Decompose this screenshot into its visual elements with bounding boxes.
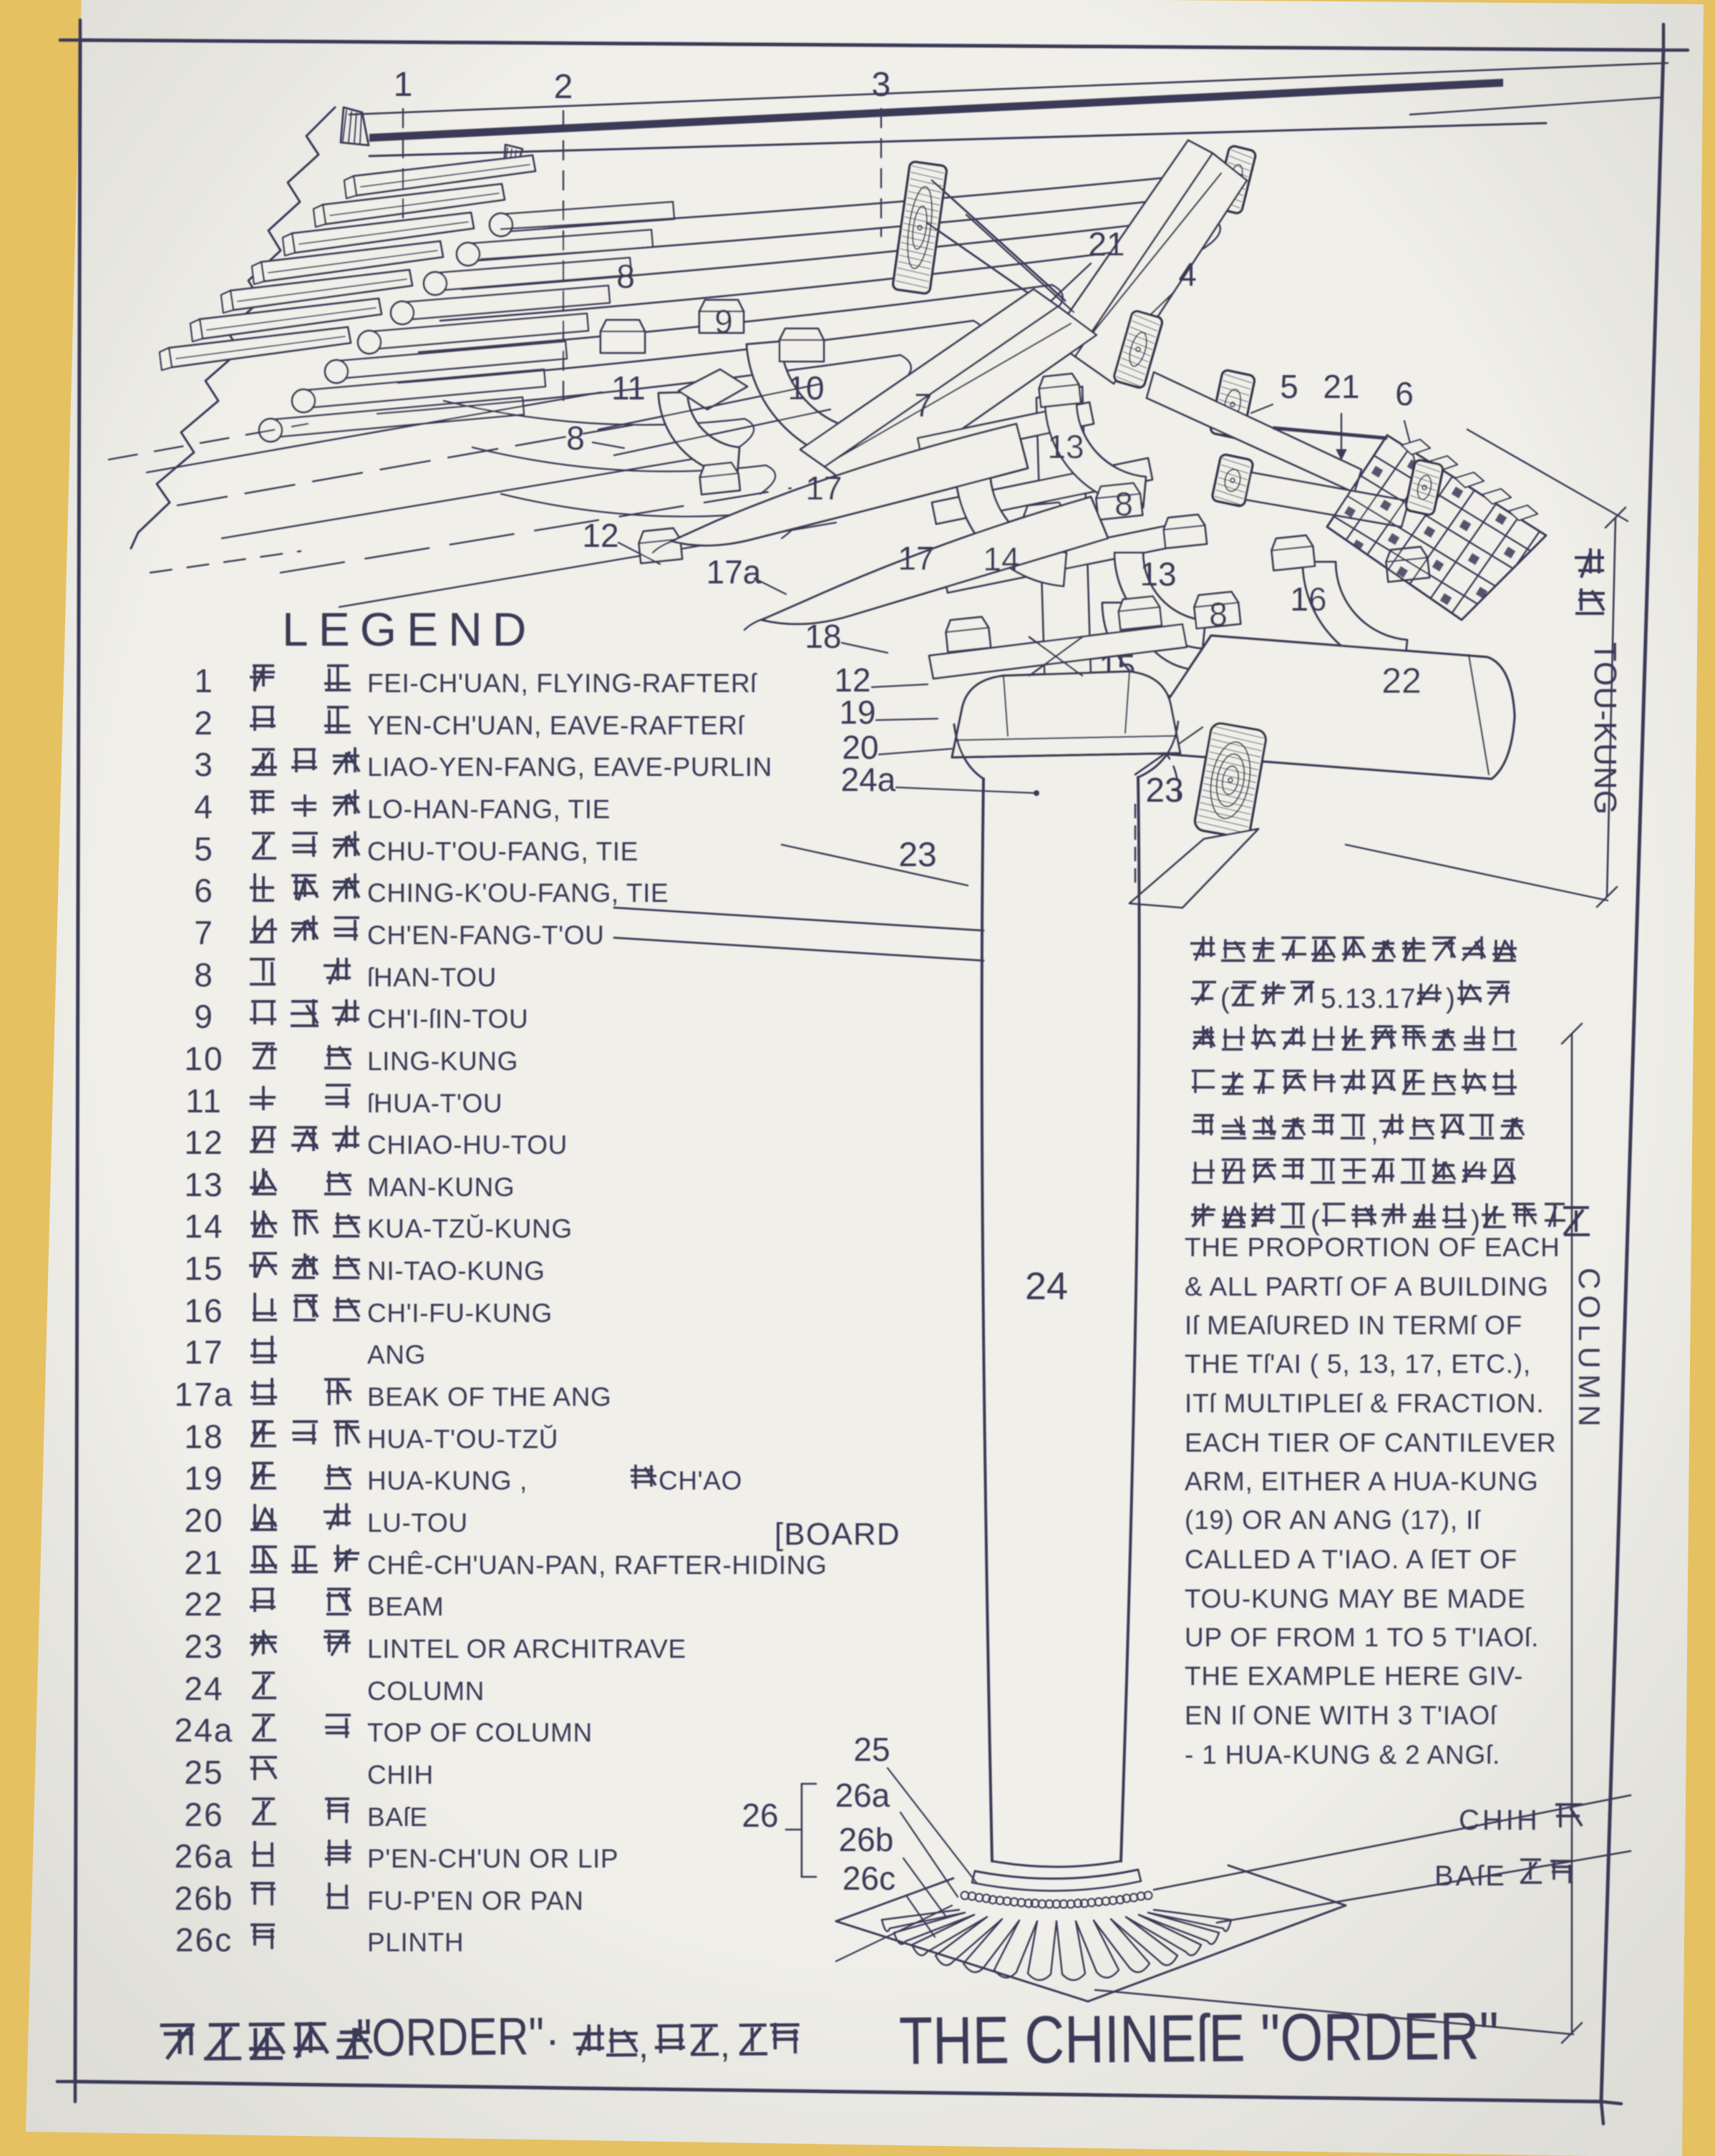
svg-text:ARM, EITHER A HUA-KUNG: ARM, EITHER A HUA-KUNG [1185, 1467, 1539, 1496]
svg-text:"ORDER": "ORDER" [356, 2007, 545, 2067]
svg-text:CHING-K'OU-FANG, TIE: CHING-K'OU-FANG, TIE [367, 878, 669, 908]
svg-text:LO-HAN-FANG, TIE: LO-HAN-FANG, TIE [367, 795, 611, 824]
svg-text:THE CHINEſE "ORDER": THE CHINEſE "ORDER" [898, 1999, 1499, 2079]
svg-text:8: 8 [1209, 596, 1228, 633]
svg-text:CHU-T'OU-FANG, TIE: CHU-T'OU-FANG, TIE [367, 837, 638, 866]
svg-text:1: 1 [1384, 984, 1399, 1014]
svg-text:4: 4 [1178, 256, 1197, 293]
svg-text:TOP OF COLUMN: TOP OF COLUMN [367, 1718, 593, 1747]
svg-text:CHIH: CHIH [367, 1760, 434, 1790]
svg-text:FEI-CH'UAN, FLYING-RAFTERſ: FEI-CH'UAN, FLYING-RAFTERſ [367, 669, 757, 698]
svg-text:LING-KUNG: LING-KUNG [367, 1047, 518, 1076]
svg-text:ſHUA-T'OU: ſHUA-T'OU [367, 1089, 502, 1118]
svg-text:THE EXAMPLE HERE GIV-: THE EXAMPLE HERE GIV- [1185, 1661, 1523, 1691]
svg-text:EN Iſ ONE WITH 3 T'IAOſ: EN Iſ ONE WITH 3 T'IAOſ [1185, 1701, 1497, 1730]
svg-text:1: 1 [394, 66, 413, 104]
svg-text:·: · [545, 2016, 560, 2064]
svg-text:P'EN-CH'UN OR LIP: P'EN-CH'UN OR LIP [367, 1844, 618, 1873]
svg-text:5: 5 [1321, 984, 1336, 1014]
svg-text:THE Tſ'AI ( 5, 13, 17, ETC.),: THE Tſ'AI ( 5, 13, 17, ETC.), [1185, 1349, 1531, 1379]
svg-text:24a: 24a [841, 761, 896, 798]
svg-text:6: 6 [1395, 375, 1414, 412]
svg-text:9: 9 [194, 998, 214, 1035]
svg-text:BEAM: BEAM [367, 1592, 444, 1621]
svg-text:26: 26 [742, 1797, 778, 1834]
svg-text:26: 26 [184, 1796, 223, 1833]
svg-text:15: 15 [184, 1250, 223, 1287]
svg-text:CH'I-ſIN-TOU: CH'I-ſIN-TOU [367, 1004, 528, 1034]
svg-text:17a: 17a [175, 1376, 234, 1413]
svg-text:9: 9 [714, 303, 733, 340]
svg-text:26a: 26a [835, 1777, 890, 1814]
svg-text:(: ( [1220, 984, 1230, 1014]
svg-text:19: 19 [184, 1460, 223, 1497]
svg-text:): ) [1446, 984, 1455, 1014]
svg-text:19: 19 [839, 694, 875, 731]
svg-text:,: , [638, 2026, 648, 2066]
svg-text:7: 7 [1400, 984, 1415, 1014]
svg-text:13: 13 [184, 1166, 223, 1203]
svg-text:12: 12 [184, 1124, 223, 1161]
svg-text:26b: 26b [175, 1880, 234, 1917]
svg-text:1: 1 [194, 662, 214, 699]
svg-text:17: 17 [898, 540, 934, 577]
svg-text:6: 6 [194, 872, 214, 909]
svg-text:BAſE: BAſE [1434, 1860, 1507, 1892]
svg-text:CHIH: CHIH [1459, 1805, 1540, 1836]
svg-text:YEN-CH'UAN, EAVE-RAFTERſ: YEN-CH'UAN, EAVE-RAFTERſ [367, 711, 745, 740]
svg-text:CHIAO-HU-TOU: CHIAO-HU-TOU [367, 1130, 568, 1160]
svg-text:7: 7 [194, 914, 214, 951]
svg-text:21: 21 [1323, 368, 1359, 405]
svg-text:LIAO-YEN-FANG, EAVE-PURLIN: LIAO-YEN-FANG, EAVE-PURLIN [367, 752, 772, 782]
svg-text:BAſE: BAſE [367, 1802, 428, 1832]
svg-text:3: 3 [1361, 984, 1376, 1014]
svg-text:COLUMN: COLUMN [1573, 1268, 1606, 1432]
svg-text:26c: 26c [842, 1860, 895, 1897]
svg-text:23: 23 [898, 836, 936, 874]
svg-text:& ALL PARTſ OF A BUILDING: & ALL PARTſ OF A BUILDING [1185, 1272, 1549, 1301]
svg-text:25: 25 [184, 1754, 223, 1791]
svg-text:8: 8 [194, 956, 214, 994]
svg-text:20: 20 [184, 1502, 223, 1539]
svg-text:10: 10 [787, 369, 824, 407]
svg-text:CH'AO: CH'AO [659, 1466, 742, 1495]
svg-text:16: 16 [1290, 581, 1326, 618]
svg-text:(19) OR AN ANG (17), Iſ: (19) OR AN ANG (17), Iſ [1185, 1505, 1481, 1535]
svg-text:18: 18 [184, 1418, 223, 1455]
svg-text:16: 16 [184, 1292, 223, 1329]
svg-text:24a: 24a [175, 1711, 234, 1749]
svg-text:THE PROPORTION OF EACH: THE PROPORTION OF EACH [1185, 1233, 1560, 1262]
svg-text:ſHAN-TOU: ſHAN-TOU [367, 963, 497, 992]
svg-text:3: 3 [194, 746, 214, 783]
svg-text:8: 8 [1114, 485, 1133, 523]
svg-text:17: 17 [805, 470, 842, 507]
svg-text:21: 21 [1088, 225, 1124, 263]
svg-text:FU-P'EN OR PAN: FU-P'EN OR PAN [367, 1886, 584, 1915]
svg-text:BEAK OF THE ANG: BEAK OF THE ANG [367, 1382, 611, 1412]
svg-text:23: 23 [1145, 772, 1183, 810]
svg-text:ANG: ANG [367, 1340, 426, 1369]
svg-text:HUA-T'OU-TZŬ: HUA-T'OU-TZŬ [367, 1424, 558, 1454]
svg-text:CHÊ-CH'UAN-PAN, RAFTER-HIDING: CHÊ-CH'UAN-PAN, RAFTER-HIDING [367, 1550, 827, 1580]
svg-text:,: , [1371, 1117, 1379, 1147]
svg-text:21: 21 [184, 1544, 223, 1581]
svg-text:26a: 26a [175, 1837, 234, 1875]
svg-text:- 1 HUA-KUNG & 2 ANGſ.: - 1 HUA-KUNG & 2 ANGſ. [1185, 1740, 1500, 1769]
svg-text:11: 11 [185, 1082, 223, 1120]
svg-text:13: 13 [1140, 555, 1176, 593]
svg-text:EACH TIER OF CANTILEVER: EACH TIER OF CANTILEVER [1185, 1428, 1556, 1457]
svg-text:1: 1 [1345, 984, 1360, 1014]
svg-text:UP OF FROM 1 TO 5 T'IAOſ.: UP OF FROM 1 TO 5 T'IAOſ. [1185, 1623, 1539, 1652]
svg-text:25: 25 [853, 1731, 890, 1768]
svg-text:24: 24 [184, 1670, 223, 1707]
svg-text:4: 4 [194, 788, 214, 825]
svg-text:LU-TOU: LU-TOU [367, 1508, 468, 1538]
svg-text:(: ( [1311, 1205, 1320, 1236]
svg-text:.: . [1376, 984, 1384, 1014]
svg-text:Iſ MEAſURED IN TERMſ OF: Iſ MEAſURED IN TERMſ OF [1185, 1311, 1522, 1340]
svg-text:2: 2 [194, 704, 214, 742]
svg-text:17: 17 [184, 1334, 223, 1371]
svg-text:11: 11 [611, 369, 646, 407]
svg-text:23: 23 [184, 1628, 223, 1665]
svg-text:22: 22 [184, 1586, 223, 1623]
svg-text:7: 7 [914, 387, 933, 424]
svg-text:CALLED A T'IAO. A ſET OF: CALLED A T'IAO. A ſET OF [1185, 1545, 1517, 1574]
svg-text:ITſ MULTIPLEſ & FRACTION.: ITſ MULTIPLEſ & FRACTION. [1185, 1389, 1544, 1418]
svg-text:KUA-TZŬ-KUNG: KUA-TZŬ-KUNG [367, 1214, 573, 1243]
svg-text:LEGEND: LEGEND [282, 603, 536, 656]
svg-text:5: 5 [1280, 368, 1298, 405]
svg-text:NI-TAO-KUNG: NI-TAO-KUNG [367, 1256, 545, 1286]
svg-text:18: 18 [805, 618, 841, 655]
svg-text:TOU-KUNG: TOU-KUNG [1588, 642, 1623, 815]
svg-text:14: 14 [184, 1208, 223, 1245]
svg-text:10: 10 [184, 1040, 223, 1077]
svg-text:TOU-KUNG MAY BE MADE: TOU-KUNG MAY BE MADE [1185, 1584, 1526, 1613]
svg-text:5: 5 [194, 830, 214, 868]
svg-text:8: 8 [616, 258, 635, 295]
svg-text:3: 3 [872, 66, 891, 104]
svg-text:HUA-KUNG ,: HUA-KUNG , [367, 1466, 528, 1495]
svg-text:CH'I-FU-KUNG: CH'I-FU-KUNG [367, 1298, 553, 1328]
svg-text:COLUMN: COLUMN [367, 1676, 485, 1706]
svg-text:14: 14 [983, 540, 1019, 578]
svg-text:12: 12 [582, 517, 618, 554]
svg-text:MAN-KUNG: MAN-KUNG [367, 1172, 515, 1202]
svg-text:17a: 17a [706, 553, 762, 591]
svg-text:24: 24 [1025, 1265, 1068, 1308]
svg-text:[BOARD: [BOARD [774, 1517, 900, 1552]
svg-text:.: . [1336, 984, 1344, 1014]
svg-text:26c: 26c [175, 1921, 233, 1958]
svg-text:13: 13 [1047, 428, 1084, 465]
svg-text:LINTEL OR ARCHITRAVE: LINTEL OR ARCHITRAVE [367, 1634, 686, 1664]
svg-text:2: 2 [554, 68, 573, 106]
svg-text:,: , [720, 2025, 730, 2065]
svg-text:): ) [1471, 1205, 1480, 1236]
svg-text:PLINTH: PLINTH [367, 1928, 464, 1957]
svg-text:CH'EN-FANG-T'OU: CH'EN-FANG-T'OU [367, 921, 604, 950]
svg-text:22: 22 [1381, 661, 1422, 701]
svg-text:8: 8 [566, 419, 585, 457]
svg-text:26b: 26b [839, 1821, 894, 1858]
